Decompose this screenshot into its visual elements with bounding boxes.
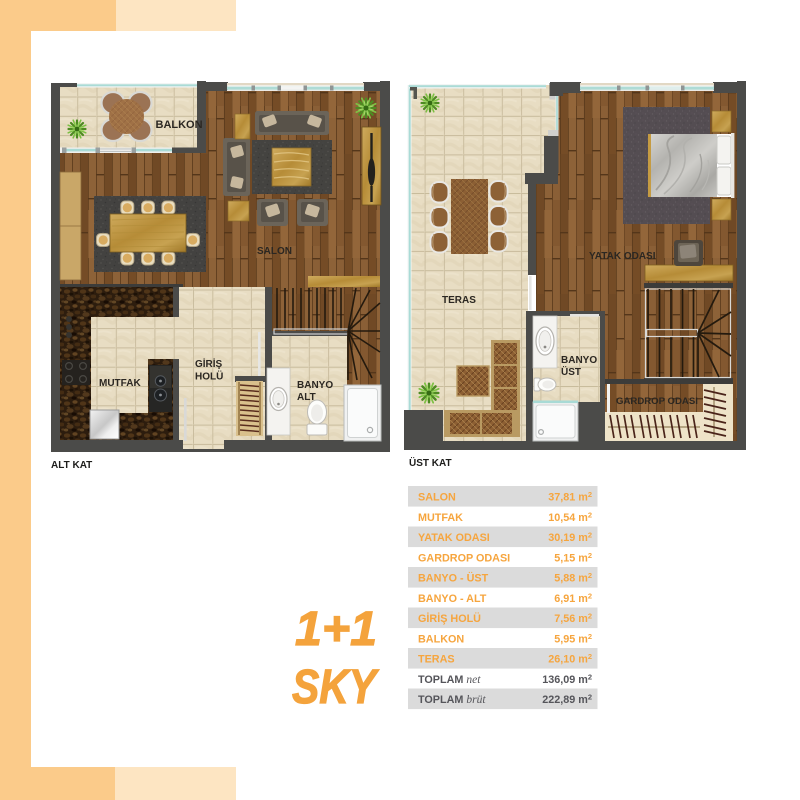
svg-text:7,56 m2: 7,56 m2: [554, 612, 592, 626]
svg-text:YATAK ODASI: YATAK ODASI: [418, 532, 490, 544]
svg-text:ALT KAT: ALT KAT: [51, 460, 92, 471]
svg-text:TOPLAM net: TOPLAM net: [418, 674, 481, 686]
svg-text:GARDROP ODASI: GARDROP ODASI: [616, 396, 698, 407]
svg-text:10,54 m2: 10,54 m2: [548, 510, 592, 524]
svg-text:SALON: SALON: [418, 492, 456, 504]
svg-text:YATAK ODASI: YATAK ODASI: [589, 251, 656, 262]
svg-text:MUTFAK: MUTFAK: [99, 378, 141, 389]
svg-text:5,88 m2: 5,88 m2: [554, 571, 592, 585]
svg-text:BANYO - ÜST: BANYO - ÜST: [418, 572, 489, 585]
svg-text:BANYO - ALT: BANYO - ALT: [418, 593, 487, 605]
svg-text:SKY: SKY: [292, 661, 379, 714]
svg-text:ALT: ALT: [297, 392, 316, 403]
svg-text:GİRİŞ HOLÜ: GİRİŞ HOLÜ: [418, 612, 481, 625]
svg-text:5,15 m2: 5,15 m2: [554, 551, 592, 565]
svg-text:5,95 m2: 5,95 m2: [554, 632, 592, 646]
svg-text:26,10 m2: 26,10 m2: [548, 652, 592, 666]
svg-text:HOLÜ: HOLÜ: [195, 370, 223, 383]
svg-text:TOPLAM brüt: TOPLAM brüt: [418, 694, 486, 706]
svg-text:SALON: SALON: [257, 246, 292, 257]
svg-text:222,89 m2: 222,89 m2: [542, 693, 592, 707]
svg-text:MUTFAK: MUTFAK: [418, 512, 463, 524]
svg-text:37,81 m2: 37,81 m2: [548, 490, 592, 504]
svg-text:BALKON: BALKON: [418, 633, 464, 645]
svg-text:136,09 m2: 136,09 m2: [542, 672, 592, 686]
svg-text:GARDROP ODASI: GARDROP ODASI: [418, 552, 510, 564]
svg-text:TERAS: TERAS: [418, 654, 455, 666]
svg-text:BANYO: BANYO: [561, 355, 597, 366]
svg-text:BANYO: BANYO: [297, 380, 333, 391]
svg-text:TERAS: TERAS: [442, 295, 476, 306]
svg-text:ÜST KAT: ÜST KAT: [409, 456, 452, 469]
svg-text:6,91 m2: 6,91 m2: [554, 591, 592, 605]
svg-text:ÜST: ÜST: [561, 365, 581, 378]
svg-text:GİRİŞ: GİRİŞ: [195, 357, 223, 370]
svg-text:1+1: 1+1: [295, 603, 377, 656]
svg-text:BALKON: BALKON: [156, 119, 203, 131]
svg-text:30,19 m2: 30,19 m2: [548, 531, 592, 545]
